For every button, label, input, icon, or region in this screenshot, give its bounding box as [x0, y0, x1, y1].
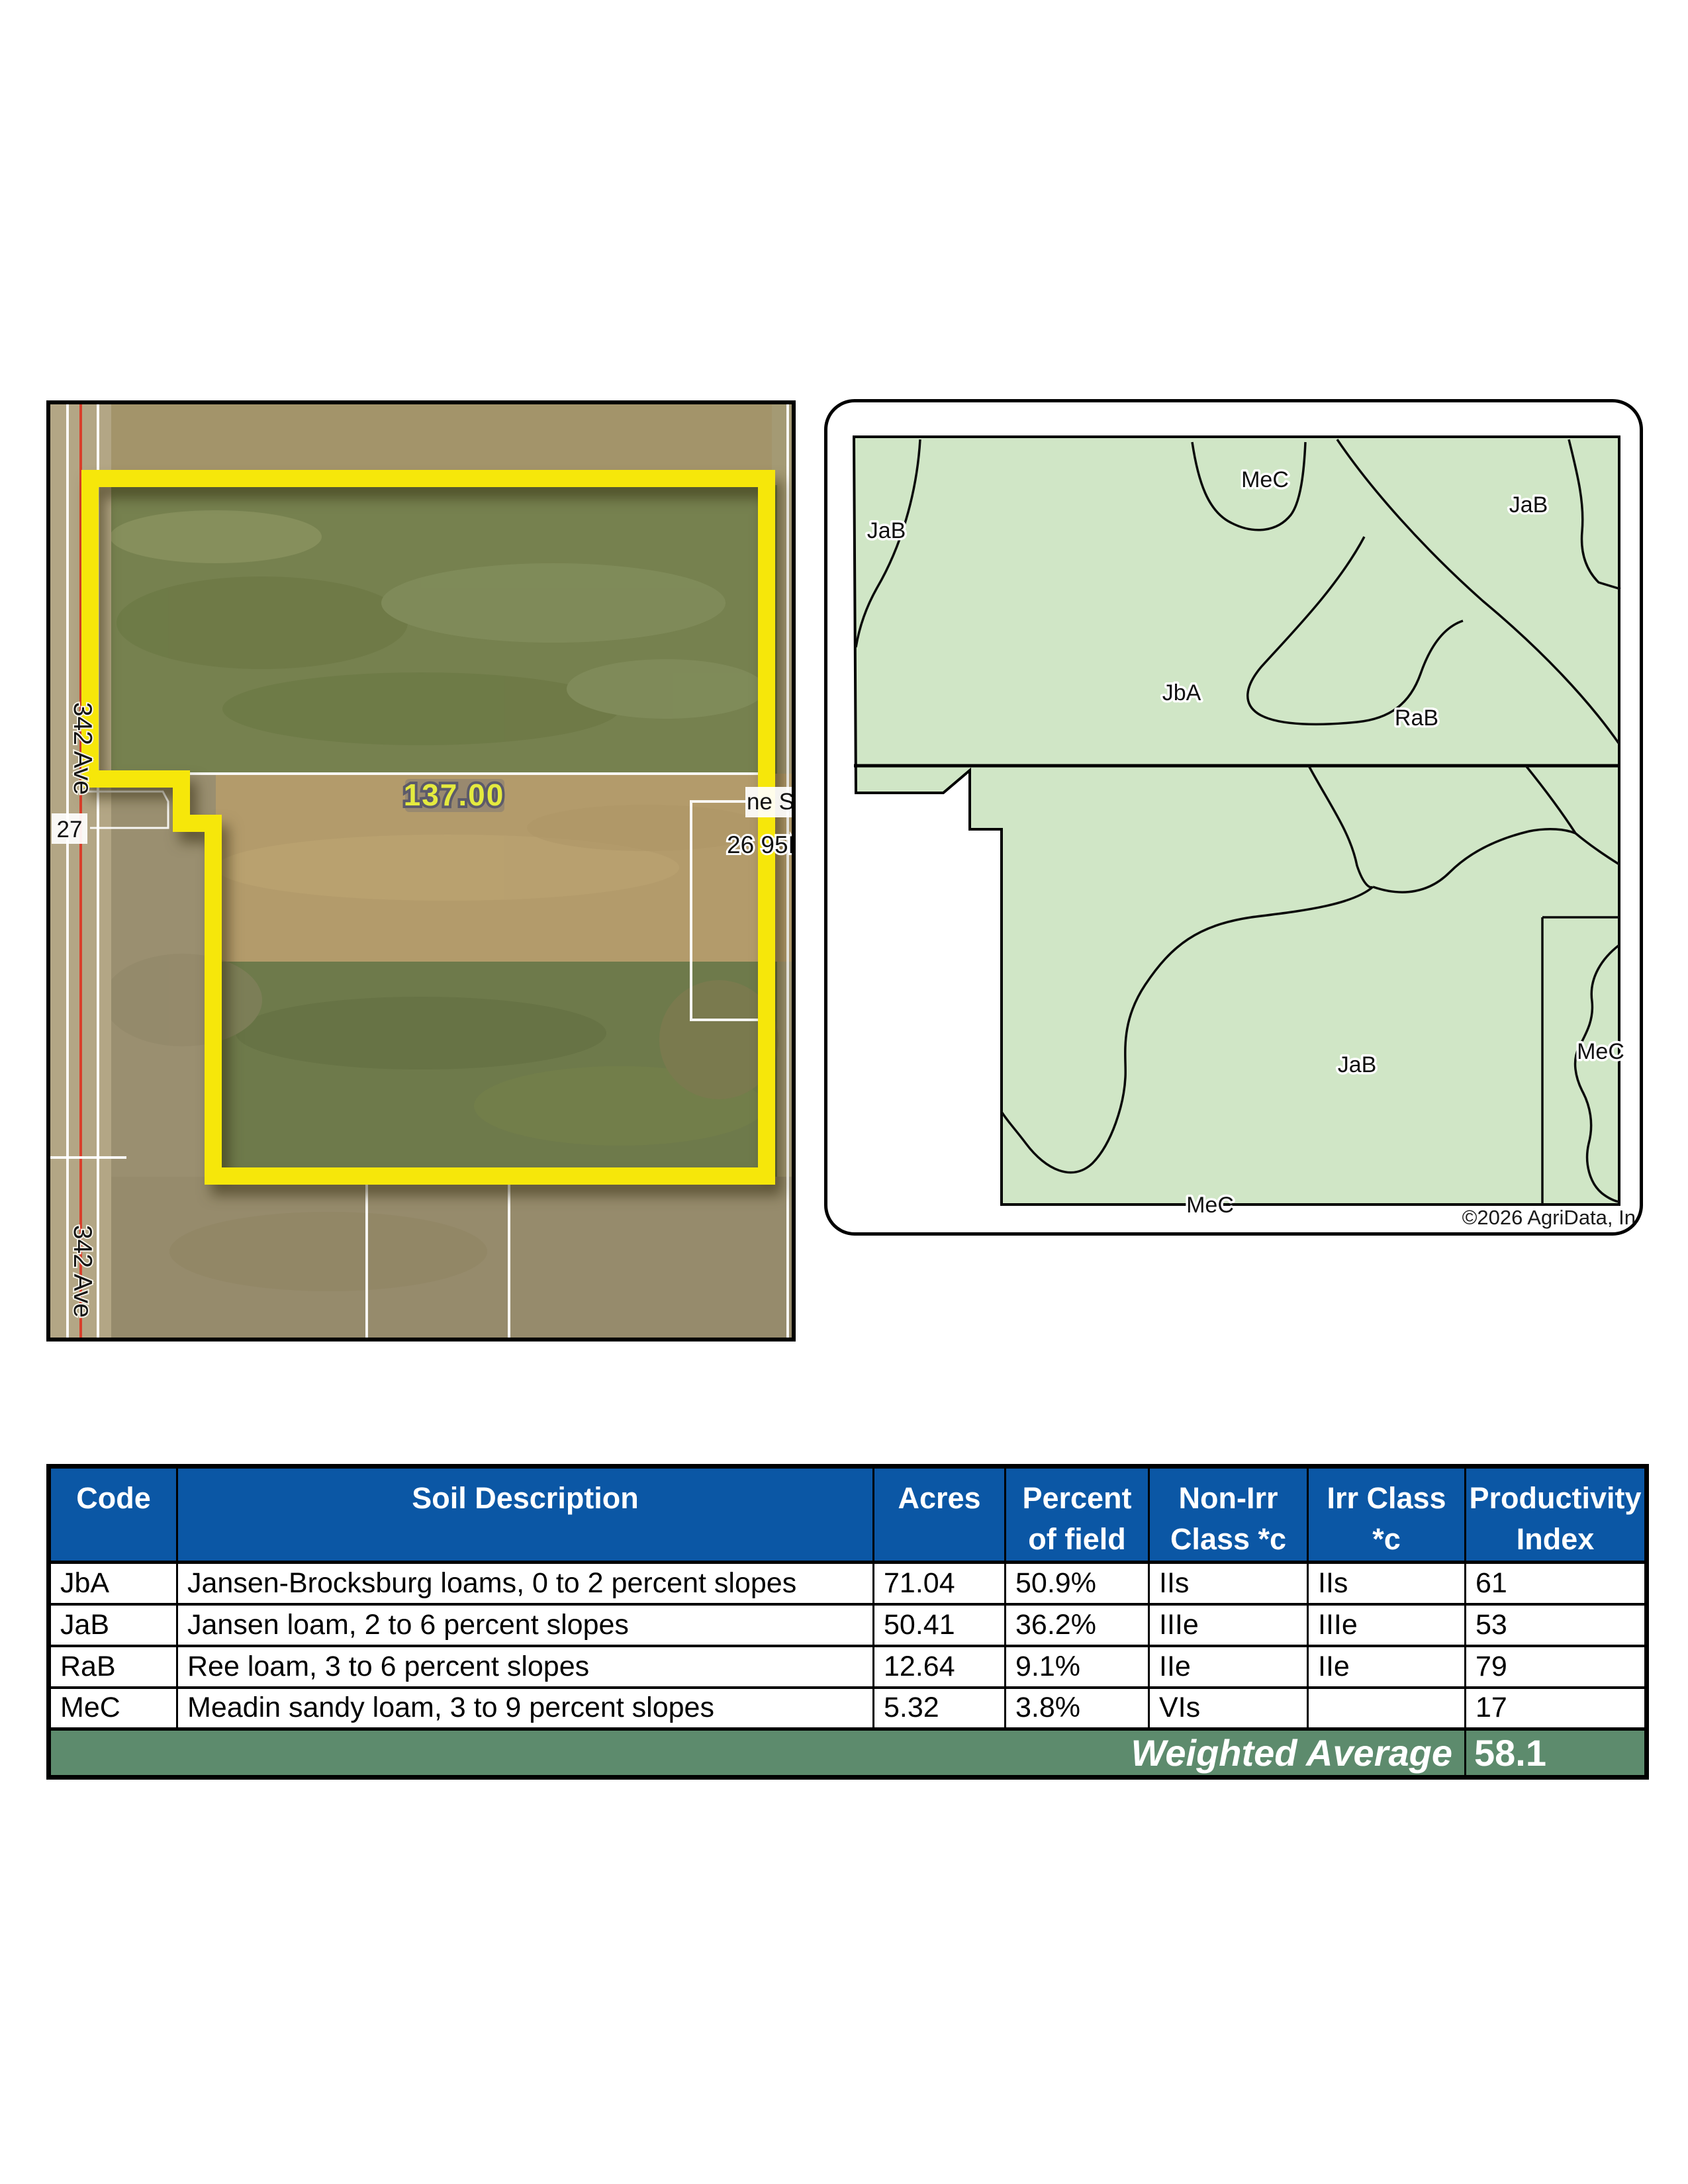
- table-cell: RaB: [49, 1646, 177, 1688]
- column-header: Percent of field: [1006, 1467, 1149, 1563]
- column-header: Acres: [874, 1467, 1006, 1563]
- table-cell: IIe: [1149, 1646, 1308, 1688]
- copyright-text: ©2026 AgriData, In: [1462, 1206, 1636, 1230]
- table-cell: IIIe: [1149, 1604, 1308, 1646]
- edge-label-2: 26 95N-7: [727, 831, 792, 858]
- table-cell: IIIe: [1308, 1604, 1466, 1646]
- table-cell: 50.9%: [1006, 1563, 1149, 1604]
- road-label-bottom: 342 Ave: [68, 1225, 97, 1318]
- aerial-photo-canvas: 137.00 342 Ave 342 Ave 27 ne S 26 95N-7: [50, 404, 792, 1338]
- aerial-photo: 137.00 342 Ave 342 Ave 27 ne S 26 95N-7: [46, 400, 796, 1342]
- table-cell: Jansen loam, 2 to 6 percent slopes: [177, 1604, 874, 1646]
- table-cell: IIe: [1308, 1646, 1466, 1688]
- table-row: MeCMeadin sandy loam, 3 to 9 percent slo…: [49, 1688, 1647, 1729]
- table-cell: 61: [1466, 1563, 1647, 1604]
- column-header: Irr Class *c: [1308, 1467, 1466, 1563]
- table-footer: Weighted Average 58.1: [49, 1729, 1647, 1778]
- soil-label-mec-right: MeC: [1577, 1039, 1624, 1064]
- table-cell: [1308, 1688, 1466, 1729]
- table-cell: 12.64: [874, 1646, 1006, 1688]
- table-cell: 53: [1466, 1604, 1647, 1646]
- table-cell: MeC: [49, 1688, 177, 1729]
- soil-label-jab-topright: JaB: [1509, 492, 1548, 518]
- table-cell: 17: [1466, 1688, 1647, 1729]
- table-cell: 50.41: [874, 1604, 1006, 1646]
- soil-area: [854, 437, 1619, 1205]
- table-cell: Ree loam, 3 to 6 percent slopes: [177, 1646, 874, 1688]
- table-header: CodeSoil DescriptionAcresPercent of fiel…: [49, 1467, 1647, 1563]
- table-cell: IIs: [1149, 1563, 1308, 1604]
- table-cell: 79: [1466, 1646, 1647, 1688]
- table-cell: 71.04: [874, 1563, 1006, 1604]
- soil-label-jab-topleft: JaB: [867, 518, 906, 543]
- route-label: 27: [57, 817, 83, 842]
- soil-label-mec-top: MeC: [1241, 467, 1289, 492]
- table-cell: 3.8%: [1006, 1688, 1149, 1729]
- table-row: RaBRee loam, 3 to 6 percent slopes12.649…: [49, 1646, 1647, 1688]
- column-header: Code: [49, 1467, 177, 1563]
- soils-table: CodeSoil DescriptionAcresPercent of fiel…: [46, 1464, 1649, 1780]
- table-row: JaBJansen loam, 2 to 6 percent slopes50.…: [49, 1604, 1647, 1646]
- table-cell: VIs: [1149, 1688, 1308, 1729]
- acres-label: 137.00: [404, 778, 505, 812]
- table-cell: JbA: [49, 1563, 177, 1604]
- table-cell: Jansen-Brocksburg loams, 0 to 2 percent …: [177, 1563, 874, 1604]
- weighted-average-value: 58.1: [1466, 1729, 1647, 1778]
- table-body: JbAJansen-Brocksburg loams, 0 to 2 perce…: [49, 1563, 1647, 1729]
- table-cell: IIs: [1308, 1563, 1466, 1604]
- report-page: 137.00 342 Ave 342 Ave 27 ne S 26 95N-7: [0, 0, 1688, 2184]
- soil-label-mec-bottom: MeC: [1186, 1193, 1234, 1218]
- table-header-row: CodeSoil DescriptionAcresPercent of fiel…: [49, 1467, 1647, 1563]
- road-label-top: 342 Ave: [68, 702, 97, 795]
- table-cell: JaB: [49, 1604, 177, 1646]
- weighted-average-row: Weighted Average 58.1: [49, 1729, 1647, 1778]
- soil-label-jab-bottom: JaB: [1338, 1052, 1377, 1077]
- soil-label-jba-center: JbA: [1162, 680, 1201, 705]
- soil-label-rab: RaB: [1395, 705, 1438, 731]
- edge-label-1: ne S: [747, 789, 792, 815]
- column-header: Productivity Index: [1466, 1467, 1647, 1563]
- soil-map: JaB MeC JaB JbA RaB JaB MeC MeC ©2026 Ag…: [824, 399, 1643, 1236]
- column-header: Non-Irr Class *c: [1149, 1467, 1308, 1563]
- table-row: JbAJansen-Brocksburg loams, 0 to 2 perce…: [49, 1563, 1647, 1604]
- weighted-average-label: Weighted Average: [49, 1729, 1466, 1778]
- table-cell: Meadin sandy loam, 3 to 9 percent slopes: [177, 1688, 874, 1729]
- soil-map-canvas: JaB MeC JaB JbA RaB JaB MeC MeC: [827, 402, 1633, 1226]
- column-header: Soil Description: [177, 1467, 874, 1563]
- table-cell: 9.1%: [1006, 1646, 1149, 1688]
- table-cell: 36.2%: [1006, 1604, 1149, 1646]
- table-cell: 5.32: [874, 1688, 1006, 1729]
